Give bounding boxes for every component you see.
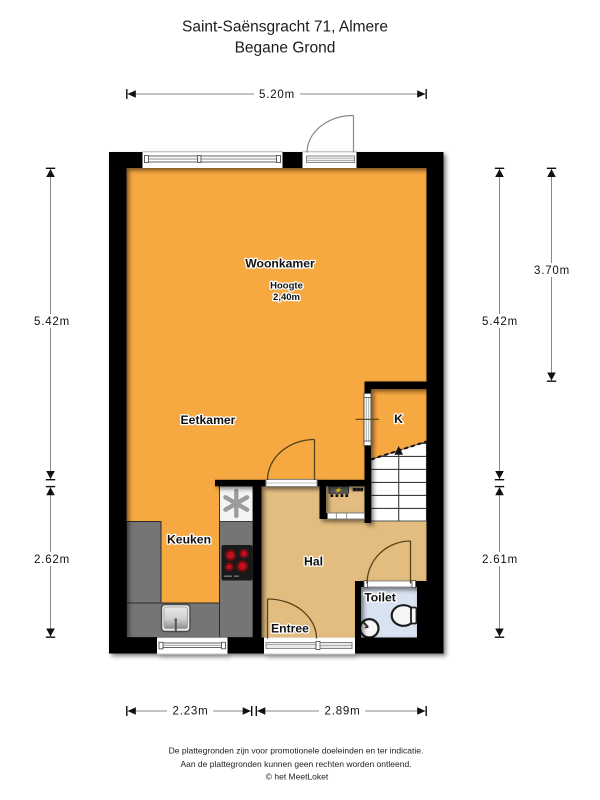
svg-text:Aan de plattegronden kunnen ge: Aan de plattegronden kunnen geen rechten…	[180, 759, 411, 769]
svg-text:K: K	[394, 412, 403, 426]
svg-text:3.70m: 3.70m	[534, 265, 570, 277]
svg-text:Begane Grond: Begane Grond	[235, 40, 336, 57]
svg-text:5.20m: 5.20m	[259, 89, 295, 101]
svg-text:Woonkamer: Woonkamer	[245, 257, 315, 271]
svg-text:Hoogte: Hoogte	[270, 281, 303, 292]
svg-text:2,40m: 2,40m	[273, 292, 300, 303]
svg-text:Keuken: Keuken	[167, 533, 211, 547]
svg-text:5.42m: 5.42m	[482, 316, 518, 328]
svg-text:Toilet: Toilet	[364, 591, 396, 605]
svg-text:2.62m: 2.62m	[34, 554, 70, 566]
svg-text:© het MeetLoket: © het MeetLoket	[266, 772, 329, 782]
svg-text:2.23m: 2.23m	[173, 706, 209, 718]
svg-text:2.89m: 2.89m	[325, 706, 361, 718]
svg-text:Entree: Entree	[271, 622, 309, 636]
svg-text:Saint-Saënsgracht 71, Almere: Saint-Saënsgracht 71, Almere	[182, 19, 388, 36]
svg-text:Hal: Hal	[304, 555, 323, 569]
svg-text:De plattegronden zijn voor pro: De plattegronden zijn voor promotionele …	[169, 746, 424, 756]
svg-text:2.61m: 2.61m	[482, 554, 518, 566]
svg-text:Eetkamer: Eetkamer	[181, 413, 236, 427]
svg-text:5.42m: 5.42m	[34, 316, 70, 328]
